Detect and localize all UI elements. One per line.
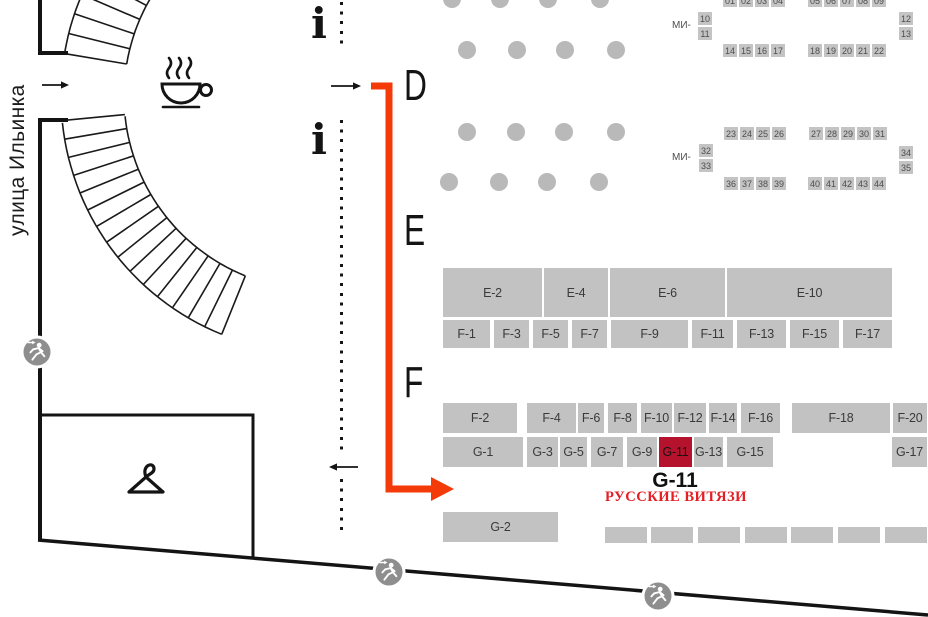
stand-25: 25 [756,127,770,140]
aisle-arrow-forward [331,82,361,89]
stand-20: 20 [840,44,854,57]
stand-35: 35 [899,161,913,174]
booth-unlabeled [791,527,833,543]
booth-f-1: F-1 [443,320,490,348]
pillar [508,41,526,59]
curved-staircase [62,0,245,334]
booth-f-17: F-17 [843,320,892,348]
pillar [507,123,525,141]
booth-unlabeled [885,527,927,543]
stand-39: 39 [772,177,786,190]
dotted-guide-line [340,120,343,455]
stand-41: 41 [824,177,838,190]
booth-f-8: F-8 [608,403,637,433]
booth-f-6: F-6 [578,403,604,433]
booth-f-9: F-9 [611,320,688,348]
exit-icon [643,581,673,611]
stand-06: 06 [824,0,838,7]
stand-36: 36 [724,177,738,190]
pillar [458,41,476,59]
booth-e-6: E-6 [610,268,725,317]
entrance-walls [38,0,68,541]
booth-e-4: E-4 [544,268,608,317]
booth-unlabeled [698,527,740,543]
stand-37: 37 [740,177,754,190]
booth-f-10: F-10 [641,403,672,433]
pillar [607,123,625,141]
coffee-icon [162,58,212,107]
booth-f-13: F-13 [737,320,786,348]
pillar [590,173,608,191]
booth-g-5: G-5 [560,437,587,467]
stand-07: 07 [840,0,854,7]
pillar [556,41,574,59]
stand-30: 30 [857,127,871,140]
booth-f-4: F-4 [527,403,576,433]
mi-label: МИ- [672,152,691,163]
stand-19: 19 [824,44,838,57]
stand-01: 01 [723,0,737,7]
stand-34: 34 [899,146,913,159]
booth-e-2: E-2 [443,268,542,317]
stand-18: 18 [808,44,822,57]
booth-f-20: F-20 [893,403,927,433]
stand-27: 27 [809,127,823,140]
pillar [440,173,458,191]
booth-f-16: F-16 [741,403,780,433]
route-arrow [371,86,454,501]
booth-g-11: G-11 [659,437,692,467]
stand-22: 22 [872,44,886,57]
stand-44: 44 [872,177,886,190]
booth-unlabeled [745,527,787,543]
highlighted-booth-company: РУССКИЕ ВИТЯЗИ [596,489,755,506]
stand-24: 24 [740,127,754,140]
booth-unlabeled [651,527,693,543]
stand-14: 14 [723,44,737,57]
stand-15: 15 [739,44,753,57]
aisle-arrow-back [329,463,358,470]
stand-32: 32 [699,144,713,157]
stand-13: 13 [899,27,913,40]
stand-40: 40 [808,177,822,190]
stand-29: 29 [841,127,855,140]
booth-f-15: F-15 [790,320,839,348]
stand-26: 26 [772,127,786,140]
stand-21: 21 [856,44,870,57]
stand-02: 02 [739,0,753,7]
booth-f-5: F-5 [533,320,568,348]
stand-04: 04 [771,0,785,7]
booth-g-7: G-7 [591,437,623,467]
zone-letter-f: F [404,361,423,405]
dotted-guide-line [340,2,343,47]
zone-letter-e: E [404,209,425,253]
booth-g-2: G-2 [443,512,558,542]
stand-05: 05 [808,0,822,7]
stand-23: 23 [724,127,738,140]
booth-f-2: F-2 [443,403,517,433]
stand-12: 12 [899,12,913,25]
zone-letter-d: D [404,64,427,108]
stand-08: 08 [856,0,870,7]
hanger-icon [129,465,163,492]
booth-f-7: F-7 [572,320,607,348]
booth-g-13: G-13 [694,437,723,467]
stand-03: 03 [755,0,769,7]
stand-31: 31 [873,127,887,140]
stand-43: 43 [856,177,870,190]
pillar [490,173,508,191]
stand-42: 42 [840,177,854,190]
dotted-guide-line [340,479,343,533]
cloakroom-walls [40,415,253,559]
exit-icon [22,337,52,367]
booth-g-3: G-3 [527,437,558,467]
booth-g-1: G-1 [443,437,523,467]
stand-28: 28 [825,127,839,140]
booth-f-3: F-3 [494,320,529,348]
booth-f-18: F-18 [792,403,890,433]
booth-g-15: G-15 [727,437,773,467]
booth-f-11: F-11 [692,320,733,348]
booth-f-12: F-12 [674,403,706,433]
booth-f-14: F-14 [709,403,737,433]
stand-11: 11 [698,27,712,40]
pillar [538,173,556,191]
stand-10: 10 [698,12,712,25]
stand-33: 33 [699,159,713,172]
pillar [555,123,573,141]
booth-g-9: G-9 [627,437,657,467]
entrance-arrow [42,81,69,88]
street-label: улица Ильинка [6,84,30,236]
booth-unlabeled [605,527,647,543]
stand-09: 09 [872,0,886,7]
diagonal-wall [38,540,928,615]
booth-unlabeled [838,527,880,543]
exit-icon [374,557,404,587]
stand-17: 17 [771,44,785,57]
pillar [458,123,476,141]
booth-g-17: G-17 [892,437,927,467]
stand-16: 16 [755,44,769,57]
exhibition-floor-plan: i i D E F улица Ильинка E-2E-4E-6E-10F-1… [0,0,928,617]
info-icon: i [311,3,327,45]
pillar [607,41,625,59]
booth-e-10: E-10 [727,268,892,317]
mi-label: МИ- [672,20,691,31]
info-icon: i [311,119,327,161]
stand-38: 38 [756,177,770,190]
